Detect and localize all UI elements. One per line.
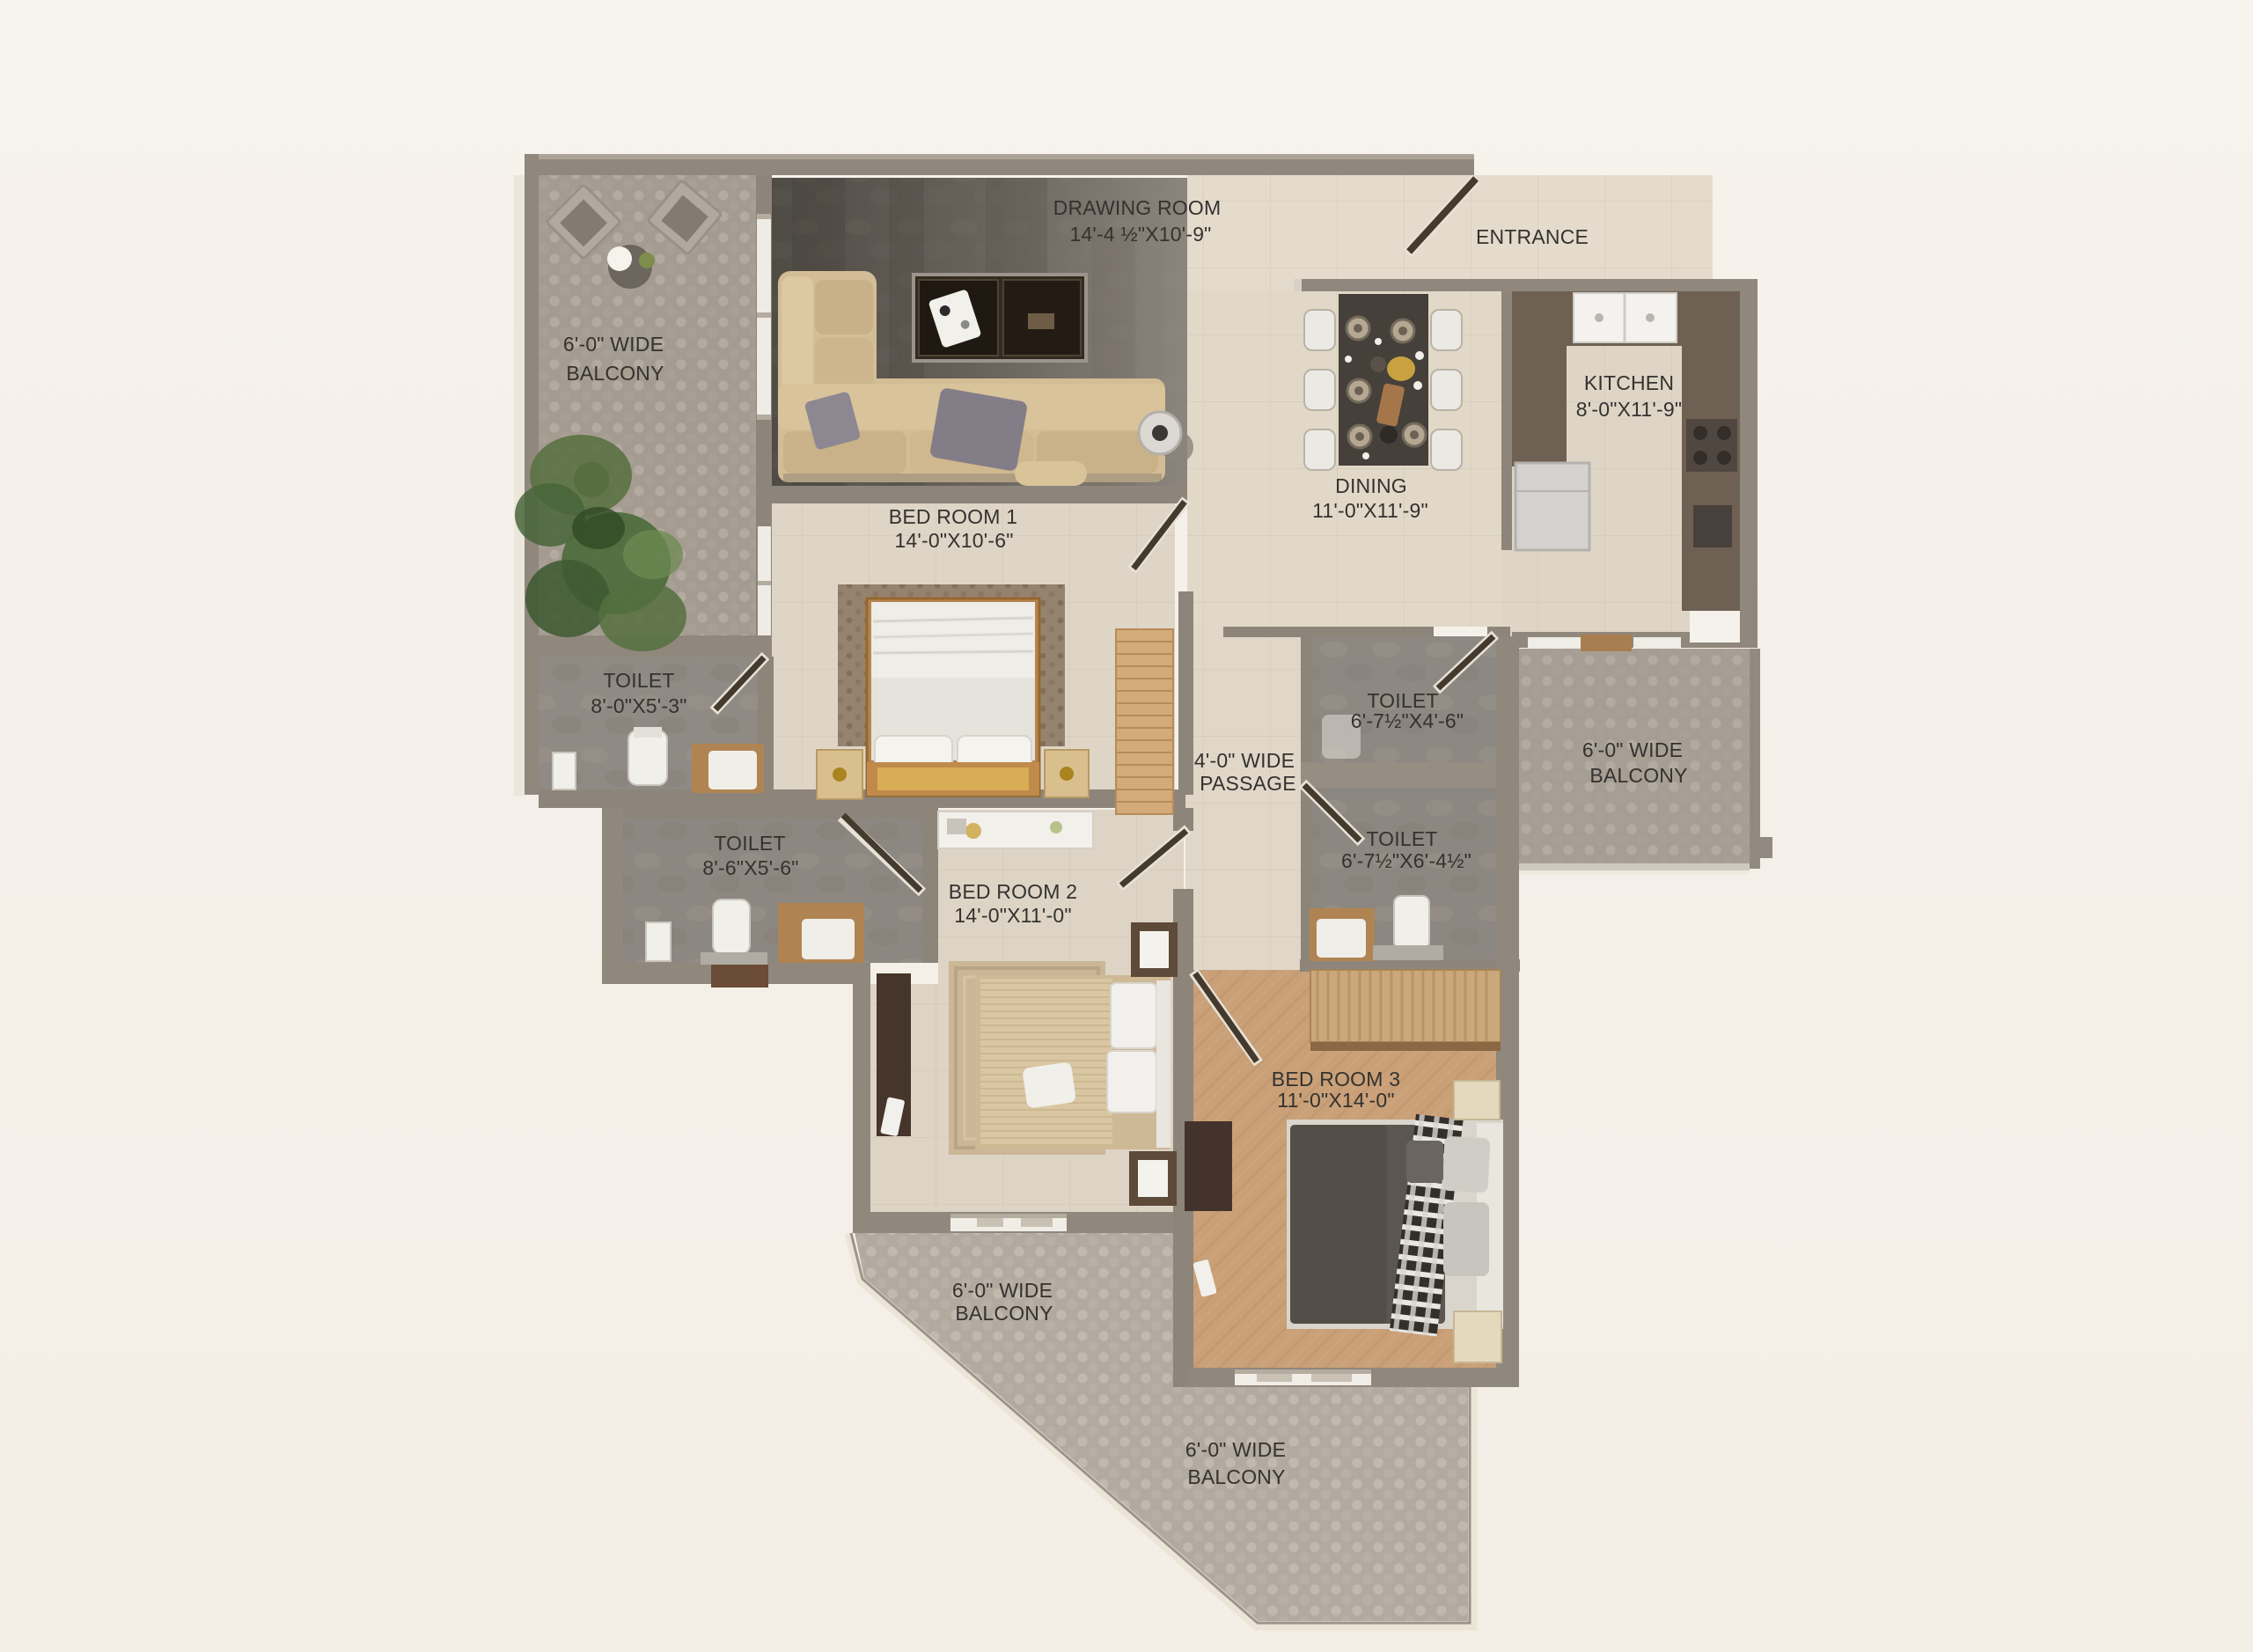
svg-text:BED ROOM 2: BED ROOM 2 (949, 880, 1077, 903)
svg-text:6'-0" WIDE: 6'-0" WIDE (1185, 1438, 1286, 1461)
svg-text:TOILET: TOILET (714, 832, 785, 855)
svg-text:6'-0" WIDE: 6'-0" WIDE (952, 1279, 1053, 1302)
svg-text:BALCONY: BALCONY (1187, 1465, 1285, 1488)
svg-text:BALCONY: BALCONY (1589, 764, 1687, 787)
svg-text:DINING: DINING (1335, 474, 1407, 497)
svg-text:14'-0"X11'-0": 14'-0"X11'-0" (954, 904, 1071, 927)
svg-text:6'-0" WIDE: 6'-0" WIDE (1582, 738, 1683, 761)
svg-text:6'-7½"X4'-6": 6'-7½"X4'-6" (1351, 709, 1464, 732)
svg-text:TOILET: TOILET (1366, 827, 1437, 850)
svg-text:BED ROOM 1: BED ROOM 1 (889, 505, 1017, 528)
svg-text:PASSAGE: PASSAGE (1200, 772, 1296, 795)
svg-text:11'-0"X11'-9": 11'-0"X11'-9" (1312, 499, 1428, 522)
svg-text:6'-0" WIDE: 6'-0" WIDE (563, 333, 664, 356)
svg-text:6'-7½"X6'-4½": 6'-7½"X6'-4½" (1341, 849, 1471, 872)
svg-text:TOILET: TOILET (603, 669, 674, 692)
svg-text:14'-0"X10'-6": 14'-0"X10'-6" (894, 529, 1013, 552)
svg-text:11'-0"X14'-0": 11'-0"X14'-0" (1277, 1089, 1394, 1112)
svg-text:BED ROOM 3: BED ROOM 3 (1272, 1068, 1400, 1090)
svg-text:4'-0" WIDE: 4'-0" WIDE (1194, 749, 1295, 772)
svg-text:8'-6"X5'-6": 8'-6"X5'-6" (702, 856, 798, 879)
svg-text:8'-0"X5'-3": 8'-0"X5'-3" (591, 694, 686, 717)
svg-text:KITCHEN: KITCHEN (1584, 371, 1674, 394)
svg-text:BALCONY: BALCONY (566, 362, 664, 385)
svg-text:ENTRANCE: ENTRANCE (1476, 225, 1589, 248)
svg-text:8'-0"X11'-9": 8'-0"X11'-9" (1576, 398, 1682, 421)
svg-text:DRAWING ROOM: DRAWING ROOM (1053, 196, 1222, 219)
svg-text:BALCONY: BALCONY (955, 1302, 1053, 1325)
svg-text:14'-4 ½"X10'-9": 14'-4 ½"X10'-9" (1069, 223, 1211, 246)
